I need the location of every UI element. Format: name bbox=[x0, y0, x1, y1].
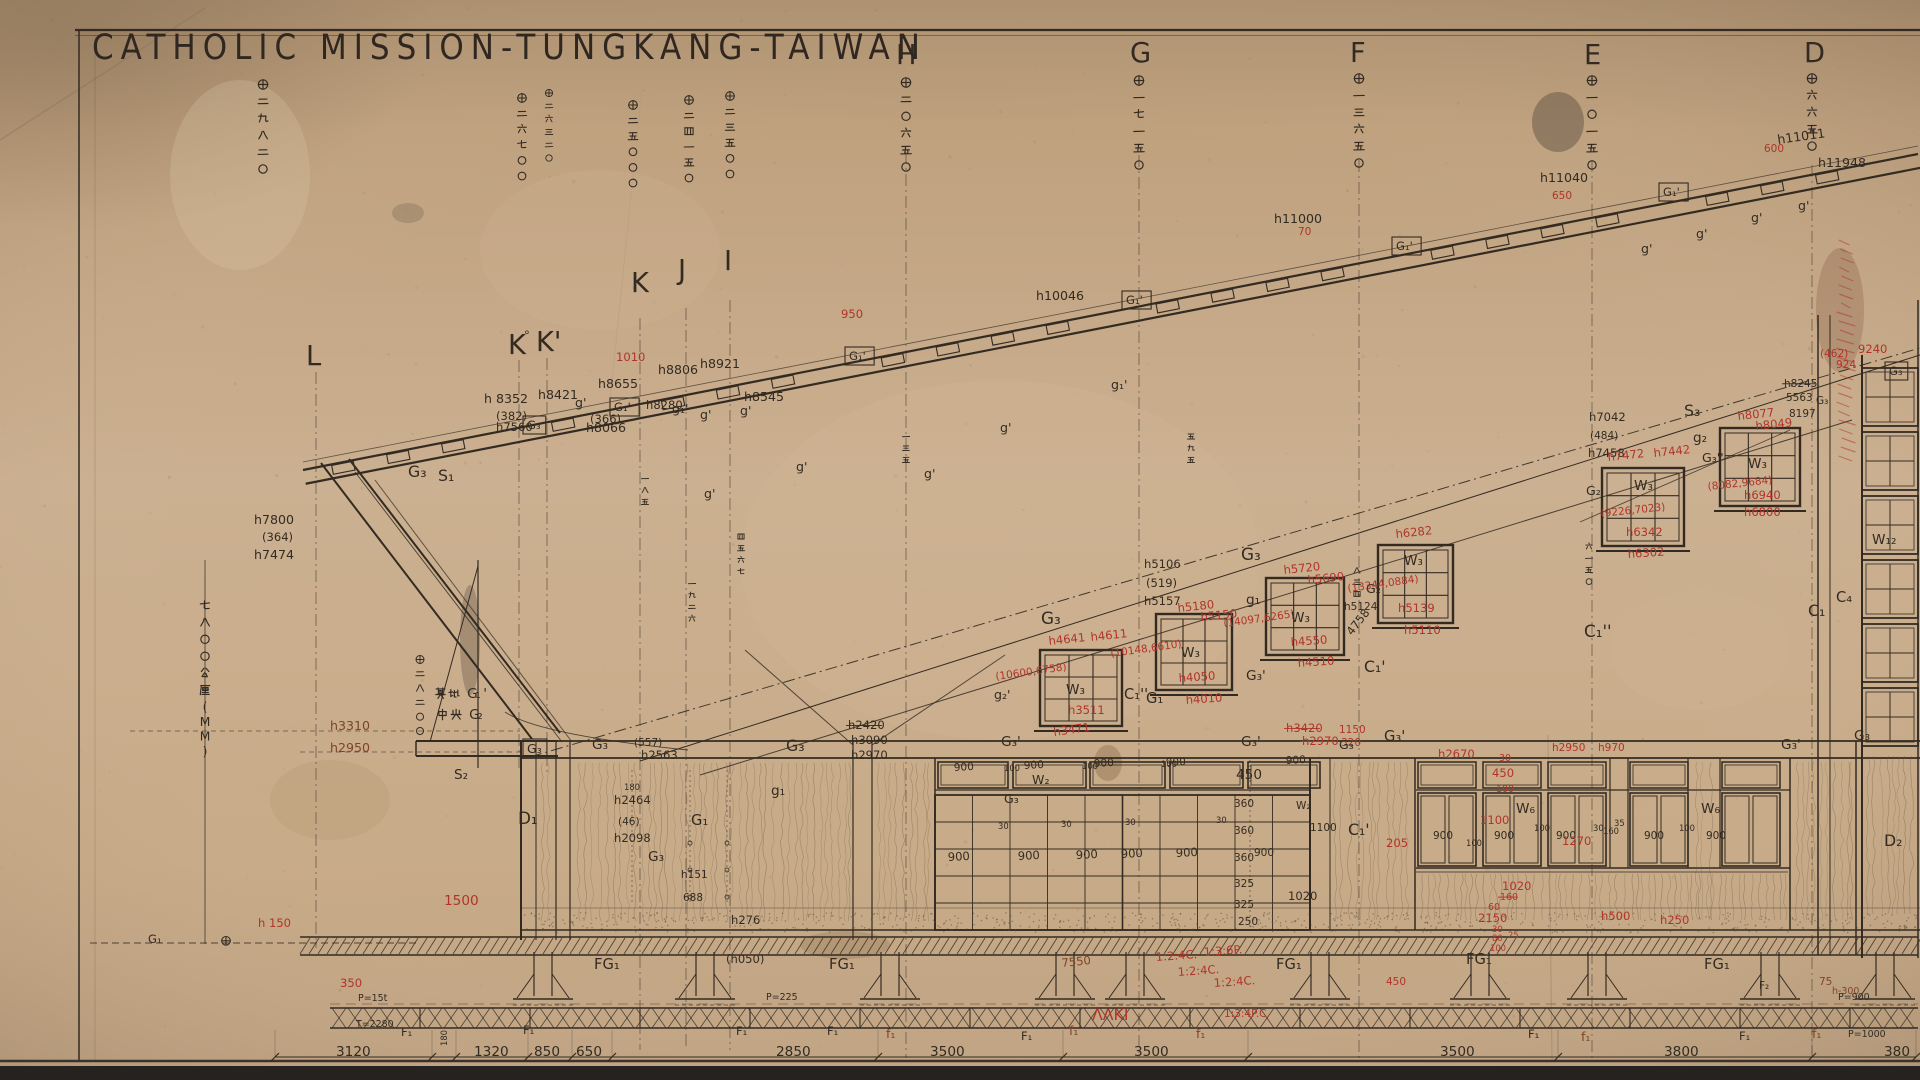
annotation-text: 205 bbox=[1386, 836, 1408, 850]
annotation-text: 1:2:4C. bbox=[1155, 947, 1197, 964]
annotation-text: h6800 bbox=[1744, 505, 1781, 519]
annotation-text: g' bbox=[796, 459, 807, 474]
annotation-text: G₃ bbox=[1004, 791, 1019, 806]
annotation-text: G₃ bbox=[527, 418, 541, 432]
annotation-text: h11948 bbox=[1818, 155, 1866, 170]
annotation-text: 900 bbox=[947, 849, 970, 864]
annotation-text: h2670 bbox=[1438, 747, 1475, 761]
annotation-text: K' bbox=[536, 327, 561, 358]
annotation-text: G₁' bbox=[1663, 185, 1680, 199]
annotation-text: G₃' bbox=[1384, 728, 1405, 745]
annotation-text: ' bbox=[483, 686, 487, 702]
annotation-text: h8545 bbox=[744, 389, 784, 404]
annotation-text: h3310 bbox=[330, 718, 370, 733]
drawing-canvas: (MM)DEFGHIJKK°K'L31201320850650285035003… bbox=[0, 0, 1920, 1080]
annotation-text: g₁' bbox=[1111, 377, 1128, 392]
annotation-text: G₁' bbox=[849, 349, 866, 363]
annotation-text: 950 bbox=[841, 307, 863, 321]
annotation-text: 1100 bbox=[1310, 822, 1337, 834]
annotation-text: h5139 bbox=[1398, 601, 1435, 615]
annotation-text: h500 bbox=[1601, 909, 1630, 923]
annotation-text: 900 bbox=[1433, 830, 1453, 842]
annotation-text: W₃ bbox=[1748, 456, 1767, 472]
annotation-text: F₁ bbox=[736, 1024, 747, 1038]
annotation-text: G₁' bbox=[1126, 293, 1143, 307]
annotation-text: (h050) bbox=[726, 952, 764, 966]
annotation-text: 75 bbox=[1819, 976, 1832, 988]
annotation-text: G₁' bbox=[614, 400, 631, 414]
annotation-text: 360 bbox=[1234, 798, 1254, 810]
annotation-text: 100 bbox=[1534, 823, 1550, 833]
annotation-text: 450 bbox=[1236, 767, 1262, 783]
annotation-text: FG₁ bbox=[1276, 956, 1302, 973]
annotation-text: g' bbox=[704, 486, 715, 501]
annotation-text: M bbox=[200, 715, 211, 729]
annotation-text: K bbox=[631, 268, 650, 299]
annotation-text: h6302 bbox=[1627, 544, 1665, 561]
annotation-text: J bbox=[676, 255, 686, 286]
annotation-text: F₁ bbox=[1528, 1027, 1539, 1041]
annotation-text: 100 bbox=[1496, 784, 1514, 795]
annotation-text: 900 bbox=[1075, 847, 1098, 862]
annotation-text: h4010 bbox=[1185, 690, 1223, 707]
annotation-text: 9240 bbox=[1858, 342, 1887, 356]
annotation-text: h8806 bbox=[658, 362, 698, 377]
annotation-text: ( bbox=[203, 700, 208, 714]
annotation-text: 30 bbox=[1125, 817, 1136, 827]
annotation-text: 1500 bbox=[444, 893, 479, 909]
annotation-text: 900 bbox=[1706, 830, 1726, 842]
annotation-text: G₃ bbox=[1339, 737, 1354, 752]
annotation-text: 100 bbox=[1466, 838, 1482, 848]
annotation-text: P=1000 bbox=[1848, 1029, 1886, 1040]
annotation-text: 1:2:4C. bbox=[1213, 973, 1255, 990]
annotation-text: G₃' bbox=[1781, 737, 1801, 753]
annotation-text: 900 bbox=[1494, 830, 1514, 842]
annotation-text: 924 bbox=[1836, 359, 1856, 371]
annotation-text: (484) bbox=[1590, 430, 1618, 442]
annotation-text: g₁' bbox=[672, 401, 689, 416]
annotation-text: D₁ bbox=[518, 808, 538, 828]
annotation-text: G₃' bbox=[1241, 734, 1261, 750]
annotation-text: h7042 bbox=[1589, 410, 1626, 424]
annotation-text: F₂ bbox=[1759, 980, 1769, 992]
annotation-text: 180 bbox=[624, 782, 640, 792]
annotation-text: h3511 bbox=[1068, 703, 1105, 717]
annotation-text: 1:3:4P.C. bbox=[1224, 1008, 1270, 1020]
annotation-text: f₁ bbox=[1581, 1029, 1590, 1044]
annotation-text: FG₁ bbox=[1466, 951, 1492, 968]
annotation-text: 30 bbox=[1216, 815, 1227, 825]
annotation-text: f₁ bbox=[1812, 1026, 1821, 1041]
annotation-text: 2150 bbox=[1478, 911, 1507, 925]
annotation-text: h8421 bbox=[538, 387, 578, 402]
annotation-text: g' bbox=[700, 407, 711, 422]
annotation-text: 600 bbox=[1764, 143, 1784, 155]
annotation-text: h6342 bbox=[1626, 525, 1663, 539]
annotation-text: 5563 bbox=[1786, 392, 1813, 404]
annotation-text: 30 bbox=[1499, 753, 1511, 764]
annotation-text: h2950 bbox=[1552, 742, 1585, 754]
annotation-text: g' bbox=[1641, 241, 1652, 256]
annotation-text: C₁' bbox=[1348, 820, 1370, 839]
annotation-text: E bbox=[1584, 40, 1601, 71]
annotation-text: 900 bbox=[1017, 848, 1040, 863]
annotation-text: C₁'' bbox=[1124, 686, 1148, 703]
annotation-text: g' bbox=[575, 395, 586, 410]
annotation-text: 850 bbox=[534, 1044, 560, 1060]
annotation-text: h276 bbox=[731, 913, 760, 927]
annotation-text: G₃ bbox=[1816, 395, 1828, 407]
annotation-text: f₁ bbox=[1069, 1023, 1078, 1038]
annotation-text: 360 bbox=[1234, 825, 1254, 837]
annotation-text: S₃ bbox=[1684, 401, 1700, 420]
annotation-text: 688 bbox=[683, 892, 703, 904]
annotation-text: F₁ bbox=[1021, 1029, 1032, 1043]
annotation-text: g' bbox=[740, 403, 751, 418]
annotation-text: L bbox=[306, 341, 322, 372]
annotation-text: W₃ bbox=[1181, 645, 1200, 661]
annotation-text: F₁ bbox=[401, 1025, 412, 1039]
annotation-text: FG₁ bbox=[1704, 956, 1730, 973]
annotation-text: 70 bbox=[1298, 226, 1311, 238]
annotation-text: 450 bbox=[1386, 976, 1406, 988]
annotation-text: 1100 bbox=[1480, 813, 1509, 827]
annotation-text: 100 bbox=[1679, 823, 1695, 833]
annotation-text: W₃ bbox=[1404, 553, 1423, 569]
annotation-text: h2464 bbox=[614, 793, 651, 807]
annotation-text: h8066 bbox=[586, 420, 626, 435]
annotation-text: (364) bbox=[262, 530, 293, 544]
annotation-text: h7474 bbox=[254, 547, 294, 562]
annotation-text: h970 bbox=[1598, 742, 1625, 754]
annotation-text: (46) bbox=[618, 816, 640, 828]
annotation-text: h6940 bbox=[1744, 488, 1781, 502]
annotation-text: 650 bbox=[576, 1044, 602, 1060]
annotation-text: F₁ bbox=[523, 1023, 534, 1037]
annotation-text: 1150 bbox=[1339, 724, 1366, 736]
annotation-text: 1:3:6P. bbox=[1203, 942, 1243, 959]
annotation-text: P=15t bbox=[358, 993, 388, 1004]
annotation-text: S₁ bbox=[438, 466, 454, 485]
annotation-text: 325 bbox=[1234, 899, 1254, 911]
annotation-text: 900 bbox=[1024, 759, 1045, 772]
annotation-text: 3500 bbox=[1134, 1044, 1169, 1060]
annotation-text: 30 bbox=[998, 821, 1009, 831]
annotation-text: 100 bbox=[1161, 759, 1177, 769]
annotation-text: 25 bbox=[1508, 930, 1519, 940]
annotation-text: D bbox=[1804, 38, 1825, 69]
annotation-text: g' bbox=[1696, 226, 1707, 241]
annotation-text: W₆ bbox=[1516, 801, 1535, 817]
annotation-text: I bbox=[724, 246, 732, 277]
annotation-text: 30 bbox=[1061, 819, 1072, 829]
annotation-text: G₁ bbox=[148, 932, 162, 946]
annotation-text: S₂ bbox=[454, 767, 468, 783]
annotation-text: C₄ bbox=[1836, 589, 1852, 606]
annotation-text: h2950 bbox=[330, 740, 370, 755]
annotation-text: 1270 bbox=[1562, 834, 1591, 848]
blueprint-scan: (MM)DEFGHIJKK°K'L31201320850650285035003… bbox=[0, 0, 1920, 1080]
annotation-text: g' bbox=[1000, 420, 1011, 435]
annotation-text: G₃' bbox=[1246, 668, 1266, 684]
annotation-text: G₃ bbox=[1041, 608, 1061, 628]
annotation-text: 8197 bbox=[1789, 408, 1816, 420]
annotation-text: 900 bbox=[1286, 754, 1307, 767]
drawing-title: CATHOLIC MISSION-TUNGKANG-TAIWAN bbox=[92, 28, 927, 68]
annotation-text: W₂ bbox=[1296, 800, 1311, 812]
annotation-text: 80 bbox=[1492, 933, 1503, 943]
annotation-text: h2563 bbox=[641, 748, 678, 762]
annotation-text: 650 bbox=[1552, 190, 1572, 202]
annotation-text: h5106 bbox=[1144, 557, 1181, 571]
annotation-text: ) bbox=[203, 745, 208, 759]
annotation-text: G₃'' bbox=[1702, 450, 1724, 465]
annotation-text: D₂ bbox=[1884, 831, 1902, 850]
annotation-text: h2970 bbox=[851, 748, 888, 762]
annotation-text: G bbox=[1130, 38, 1151, 69]
annotation-text: g' bbox=[924, 466, 935, 481]
annotation-text: T=2280 bbox=[355, 1019, 394, 1030]
annotation-text: C₁ bbox=[1808, 601, 1825, 620]
annotation-text: 450 bbox=[1492, 766, 1514, 780]
annotation-text: h4510 bbox=[1297, 653, 1335, 670]
annotation-text: 380 bbox=[1884, 1044, 1910, 1060]
annotation-text: G₃ bbox=[648, 849, 664, 865]
annotation-text: G₂ bbox=[1586, 483, 1601, 498]
annotation-text: G₃ bbox=[408, 462, 427, 481]
annotation-text: 325 bbox=[1234, 878, 1254, 890]
annotation-text: ₁ bbox=[475, 686, 480, 702]
annotation-text: 100 bbox=[1004, 763, 1020, 773]
annotation-text: 3500 bbox=[1440, 1044, 1475, 1060]
annotation-text: 1320 bbox=[474, 1044, 509, 1060]
annotation-text: C₁'' bbox=[1584, 621, 1612, 641]
annotation-text: f₁ bbox=[886, 1026, 895, 1041]
annotation-text: 350 bbox=[340, 976, 362, 990]
annotation-text: 1020 bbox=[1502, 879, 1531, 893]
annotation-text: h 8352 bbox=[484, 391, 528, 406]
annotation-text: W₆ bbox=[1701, 801, 1720, 817]
annotation-text: 1010 bbox=[616, 350, 645, 364]
annotation-text: FG₁ bbox=[829, 956, 855, 973]
annotation-text: h8921 bbox=[700, 356, 740, 371]
annotation-text: W₃ bbox=[1291, 610, 1310, 626]
annotation-text: W₃ bbox=[1634, 478, 1653, 494]
annotation-text: G₃ bbox=[786, 736, 805, 755]
annotation-text: h4550 bbox=[1290, 632, 1328, 649]
annotation-text: 900 bbox=[1120, 846, 1143, 861]
annotation-text: h 150 bbox=[258, 916, 291, 930]
annotation-text: h10046 bbox=[1036, 288, 1084, 303]
annotation-text: g₂' bbox=[994, 687, 1011, 702]
annotation-text: ₂ bbox=[477, 707, 482, 723]
annotation-text: G₃ bbox=[1854, 728, 1870, 744]
annotation-text: g' bbox=[1798, 198, 1809, 213]
annotation-text: G₃ bbox=[1889, 364, 1903, 378]
annotation-text: h4050 bbox=[1178, 668, 1216, 685]
annotation-text: h11040 bbox=[1540, 170, 1588, 185]
annotation-text: FG₁ bbox=[594, 956, 620, 973]
annotation-text: ΛΛΚΙ bbox=[1092, 1005, 1129, 1024]
annotation-text: W₃ bbox=[1066, 682, 1085, 698]
annotation-text: 3500 bbox=[930, 1044, 965, 1060]
annotation-text: C₁' bbox=[1364, 657, 1386, 676]
annotation-text: 3800 bbox=[1664, 1044, 1699, 1060]
annotation-text: h7800 bbox=[254, 512, 294, 527]
annotation-text: 360 bbox=[1234, 852, 1254, 864]
annotation-text: F₁ bbox=[827, 1024, 838, 1038]
annotation-text: 180 bbox=[439, 1030, 449, 1046]
annotation-text: F₁ bbox=[1739, 1029, 1750, 1043]
annotation-text: M bbox=[200, 730, 211, 744]
annotation-text: g₁ bbox=[771, 783, 785, 799]
annotation-text: P=900 bbox=[1838, 992, 1870, 1003]
annotation-text: G₃' bbox=[1001, 734, 1021, 750]
annotation-text: 250 bbox=[1238, 916, 1258, 928]
annotation-text: ° bbox=[524, 328, 530, 342]
annotation-text: 100 bbox=[1490, 943, 1506, 953]
annotation-text: (519) bbox=[1146, 576, 1177, 590]
annotation-text: g' bbox=[1751, 210, 1762, 225]
annotation-text: 900 bbox=[1254, 847, 1274, 859]
annotation-text: h11000 bbox=[1274, 211, 1322, 226]
annotation-text: h151 bbox=[681, 869, 708, 881]
annotation-text: h5110 bbox=[1404, 623, 1441, 637]
annotation-text: W₁₂ bbox=[1872, 532, 1896, 548]
annotation-text: F bbox=[1350, 38, 1366, 69]
annotation-text: 900 bbox=[954, 761, 975, 774]
annotation-text: g₂ bbox=[1693, 430, 1707, 446]
annotation-text: 1020 bbox=[1288, 889, 1317, 903]
annotation-text: G₁' bbox=[1396, 239, 1413, 253]
annotation-text: 900 bbox=[1175, 845, 1198, 860]
annotation-text: 3120 bbox=[336, 1044, 371, 1060]
annotation-text: 2850 bbox=[776, 1044, 811, 1060]
annotation-text: h250 bbox=[1660, 913, 1689, 927]
annotation-text: 900 bbox=[1644, 830, 1664, 842]
annotation-text: h2098 bbox=[614, 831, 651, 845]
annotation-text: W₂ bbox=[1032, 772, 1050, 787]
annotation-text: h5157 bbox=[1144, 594, 1181, 608]
annotation-text: 100 bbox=[1082, 761, 1098, 771]
annotation-text: G₁ bbox=[1146, 690, 1163, 707]
annotation-text: G₃ bbox=[1241, 544, 1261, 564]
annotation-text: h8655 bbox=[598, 376, 638, 391]
annotation-text: g₁ bbox=[1246, 592, 1260, 608]
annotation-text: G₁ bbox=[691, 812, 708, 829]
annotation-text: G₃ bbox=[527, 741, 542, 756]
annotation-text: f₁ bbox=[1196, 1026, 1205, 1041]
annotation-text: P=225 bbox=[766, 992, 798, 1003]
annotation-text: 35 bbox=[1614, 818, 1625, 828]
